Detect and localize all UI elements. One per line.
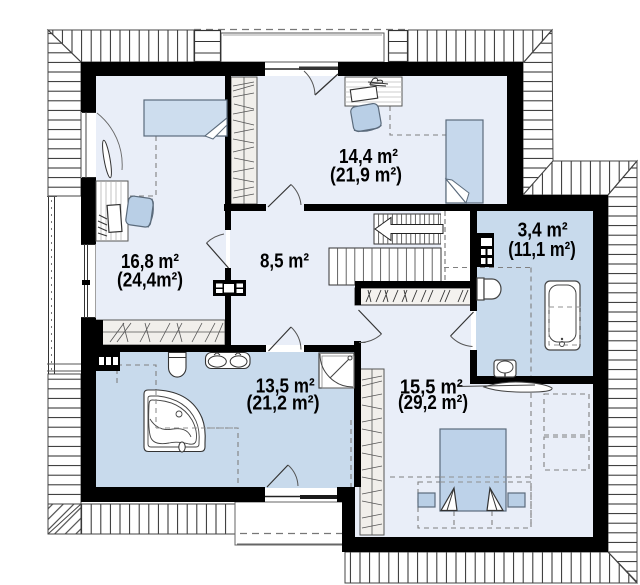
svg-text:8,5 m²: 8,5 m² (260, 250, 309, 273)
svg-text:(29,2 m²): (29,2 m²) (398, 391, 468, 414)
svg-text:(24,4m²): (24,4m²) (117, 269, 183, 292)
svg-text:(11,1 m²): (11,1 m²) (508, 238, 576, 261)
svg-text:(21,2 m²): (21,2 m²) (247, 391, 320, 414)
svg-text:(21,9 m²): (21,9 m²) (330, 164, 402, 187)
